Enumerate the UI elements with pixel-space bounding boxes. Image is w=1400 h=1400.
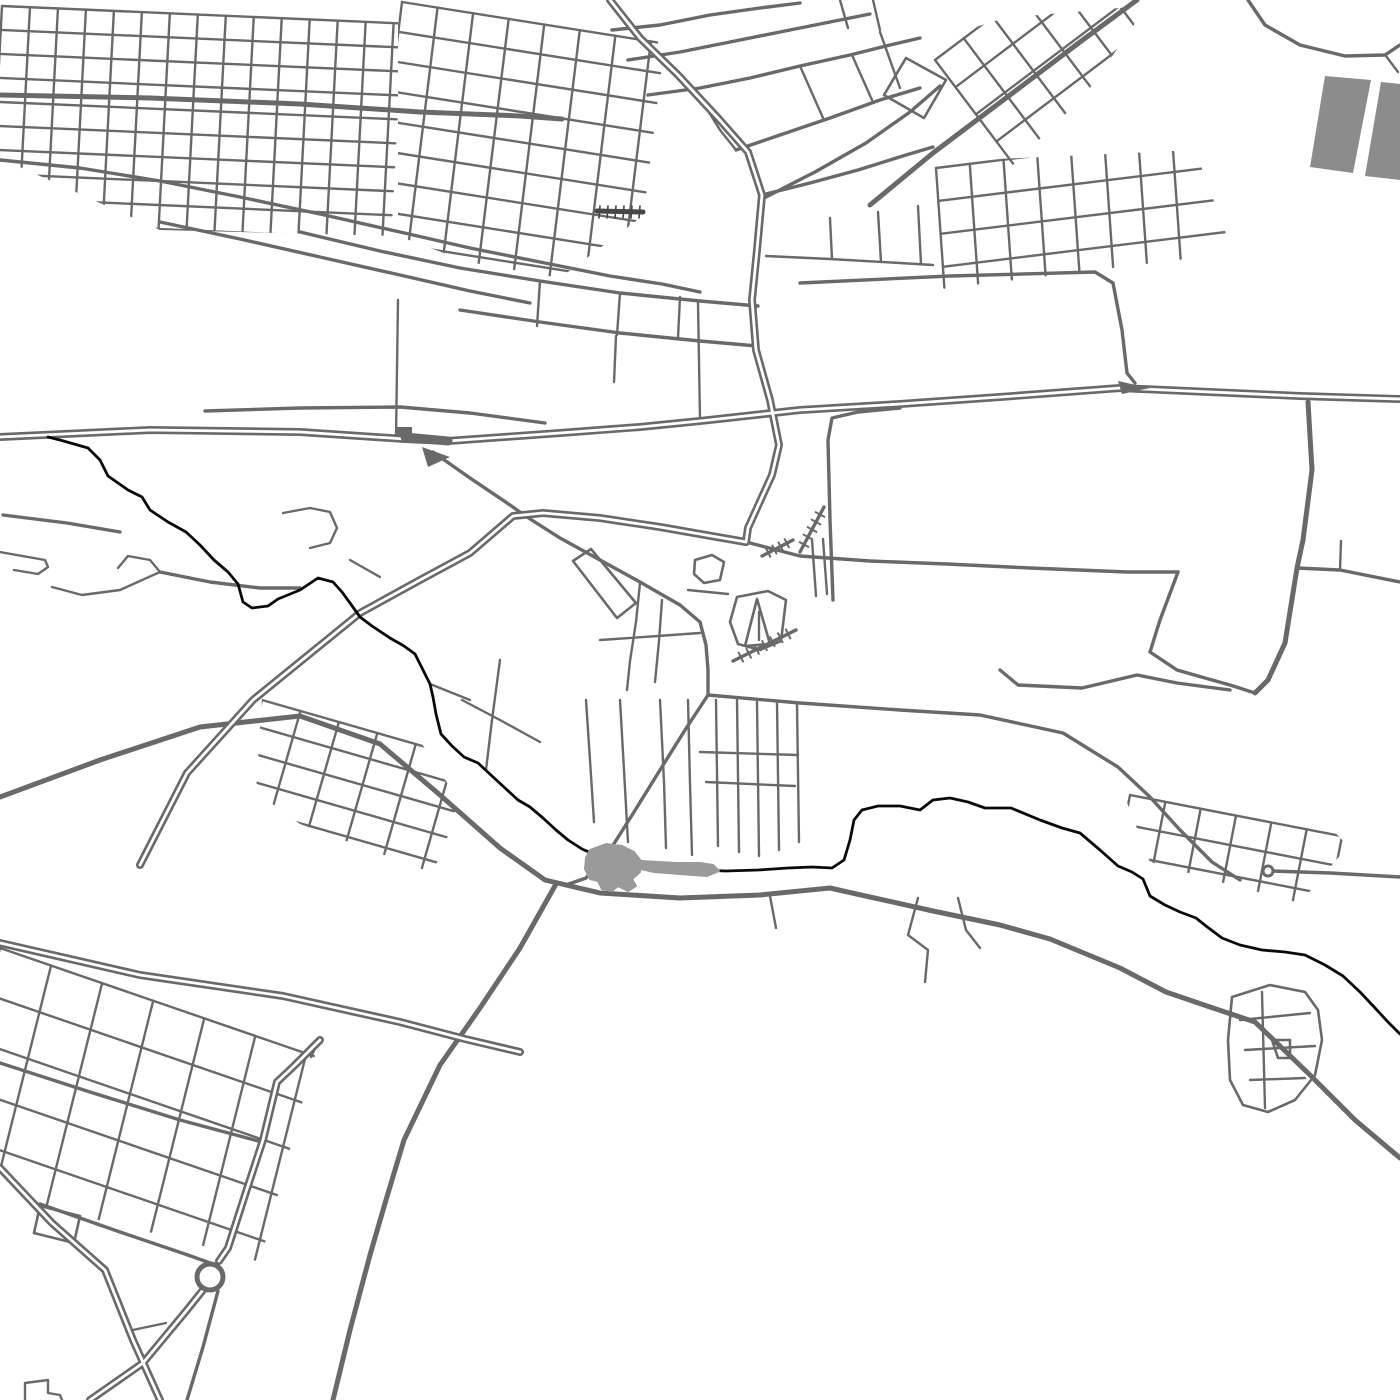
grid-street <box>1003 160 1011 280</box>
grid-street <box>2 6 402 23</box>
highway-casing <box>0 943 520 1052</box>
grid-patch <box>367 2 664 329</box>
highway-centerline <box>219 1040 320 1261</box>
highway-casing <box>90 1290 203 1400</box>
grid-street <box>380 181 642 222</box>
road-segment <box>460 310 757 346</box>
grid-street <box>1021 0 1111 115</box>
medium-roads-layer <box>0 0 1400 1400</box>
road-segment <box>1000 670 1230 690</box>
road-segment <box>700 752 798 755</box>
grid-street <box>398 32 660 73</box>
river-path <box>48 437 1400 1034</box>
road-segment <box>537 281 540 326</box>
block-outline <box>694 555 724 583</box>
road-segment <box>736 88 920 150</box>
station-tick-icon <box>639 206 640 218</box>
road-segment <box>698 303 700 420</box>
grid-street <box>0 198 392 215</box>
road-segment <box>430 684 470 700</box>
grid-street <box>473 19 508 307</box>
road-segment <box>878 212 881 262</box>
grid-street <box>1138 143 1146 263</box>
highway-layer <box>0 0 1400 1400</box>
road-segment <box>396 300 398 437</box>
road-segment <box>52 556 160 595</box>
grid-street <box>262 700 469 759</box>
road-segment <box>706 782 795 786</box>
lake-polygon <box>641 861 719 876</box>
road-segment <box>1262 992 1265 1108</box>
grid-street <box>232 804 439 863</box>
road-segment <box>823 539 827 594</box>
station-tick-icon <box>599 206 600 218</box>
grid-street <box>0 1088 287 1199</box>
highway-centerline <box>610 0 779 542</box>
block-outline <box>745 599 770 646</box>
road-segment <box>1150 572 1255 693</box>
grid-patch <box>0 948 321 1374</box>
grid-street <box>1172 139 1180 259</box>
road-segment <box>628 14 870 60</box>
road-segment <box>918 206 921 264</box>
road-segment <box>800 66 823 118</box>
road-segment <box>764 86 940 198</box>
road-segment <box>205 407 545 423</box>
grid-street <box>580 36 615 324</box>
grid-street <box>943 230 1241 267</box>
road-segment <box>128 1323 166 1331</box>
road-segment <box>1272 871 1400 877</box>
road-segment <box>828 408 900 600</box>
grid-street <box>395 62 657 103</box>
grid-street <box>616 41 651 329</box>
road-segment <box>1297 568 1400 582</box>
station-tick-icon <box>615 206 616 218</box>
water-layer <box>585 844 719 891</box>
grid-street <box>544 30 579 318</box>
grid-street <box>240 778 447 837</box>
interchange-bar-icon <box>405 437 448 441</box>
major-roads-layer <box>0 0 1400 1400</box>
road-segment <box>746 542 1178 572</box>
road-segment <box>1250 1078 1305 1080</box>
grid-street <box>0 78 398 95</box>
interchange-arrow-icon <box>422 447 450 467</box>
station-tick-icon <box>607 206 608 218</box>
road-segment <box>716 700 718 846</box>
road-segment <box>958 898 980 948</box>
grid-patch <box>0 6 402 263</box>
road-segment <box>873 0 880 30</box>
grid-street <box>384 151 646 192</box>
road-segment <box>655 600 662 682</box>
station-bar-icon <box>597 211 643 212</box>
road-segment <box>433 452 708 693</box>
road-segment <box>350 560 380 577</box>
road-segment <box>1386 56 1398 72</box>
grid-roads-layer <box>0 0 1351 1374</box>
grid-street <box>438 13 473 301</box>
road-segment <box>800 272 1135 383</box>
road-segment <box>462 700 540 742</box>
road-segment <box>1255 402 1312 693</box>
road-segment <box>3 515 120 532</box>
building-footprint <box>1365 82 1400 180</box>
grid-street <box>387 121 649 162</box>
grid-patch <box>936 131 1241 287</box>
grid-street <box>1108 795 1130 908</box>
grid-street <box>0 126 395 143</box>
road-segment <box>600 633 700 640</box>
minor-roads-layer <box>0 0 1398 1400</box>
grid-street <box>509 25 544 313</box>
road-segment <box>678 297 680 338</box>
map-viewport <box>0 0 1400 1400</box>
road-segment <box>737 700 739 852</box>
grid-street <box>936 168 944 288</box>
road-segment <box>812 540 816 596</box>
station-tick-icon <box>631 206 632 218</box>
grid-patch <box>935 0 1185 180</box>
road-segment <box>797 704 799 842</box>
road-segment <box>0 552 48 574</box>
grid-street <box>1071 151 1079 271</box>
grid-street <box>970 164 978 284</box>
road-segment <box>0 716 1400 1158</box>
road-segment <box>840 0 848 28</box>
grid-street <box>996 15 1164 141</box>
grid-street <box>936 131 1234 168</box>
road-segment <box>586 700 594 822</box>
road-segment <box>283 508 337 548</box>
grid-street <box>1037 156 1045 276</box>
building-layer <box>1310 76 1400 180</box>
road-segment <box>757 702 759 856</box>
grid-street <box>0 54 399 71</box>
station-tick-icon <box>623 206 624 218</box>
road-segment <box>614 336 616 382</box>
road-segment <box>617 293 620 335</box>
roundabout-icon <box>1263 866 1273 876</box>
river-layer <box>48 437 1400 1034</box>
city-map-canvas <box>0 0 1400 1400</box>
road-segment <box>612 3 800 30</box>
grid-street <box>938 164 1236 201</box>
grid-street <box>0 995 310 1106</box>
lake-polygon <box>585 844 641 891</box>
road-segment <box>160 222 530 303</box>
grid-street <box>0 948 321 1059</box>
road-segment <box>660 700 666 848</box>
grid-street <box>402 8 437 296</box>
grid-street <box>1320 836 1342 949</box>
road-segment <box>708 695 1240 880</box>
roundabout-icon <box>197 1264 223 1290</box>
grid-street <box>1105 147 1113 267</box>
road-segment <box>770 896 776 928</box>
grid-street <box>1 30 401 47</box>
grid-street <box>1017 42 1185 168</box>
road-segment <box>852 55 872 100</box>
road-segment <box>25 1380 62 1400</box>
grid-street <box>0 1041 298 1152</box>
grid-street <box>941 197 1239 234</box>
road-segment <box>1340 541 1341 570</box>
road-segment <box>880 32 900 88</box>
road-segment <box>830 218 832 259</box>
building-footprint <box>1310 76 1371 173</box>
road-segment <box>766 256 933 265</box>
block-outline <box>573 549 636 618</box>
interchange-tab-icon <box>396 427 412 436</box>
road-segment <box>1248 0 1400 56</box>
grid-street <box>225 830 432 889</box>
road-segment <box>688 590 728 594</box>
road-segment <box>333 884 556 1400</box>
road-segment <box>777 702 779 850</box>
symbols-layer <box>197 206 1273 1290</box>
